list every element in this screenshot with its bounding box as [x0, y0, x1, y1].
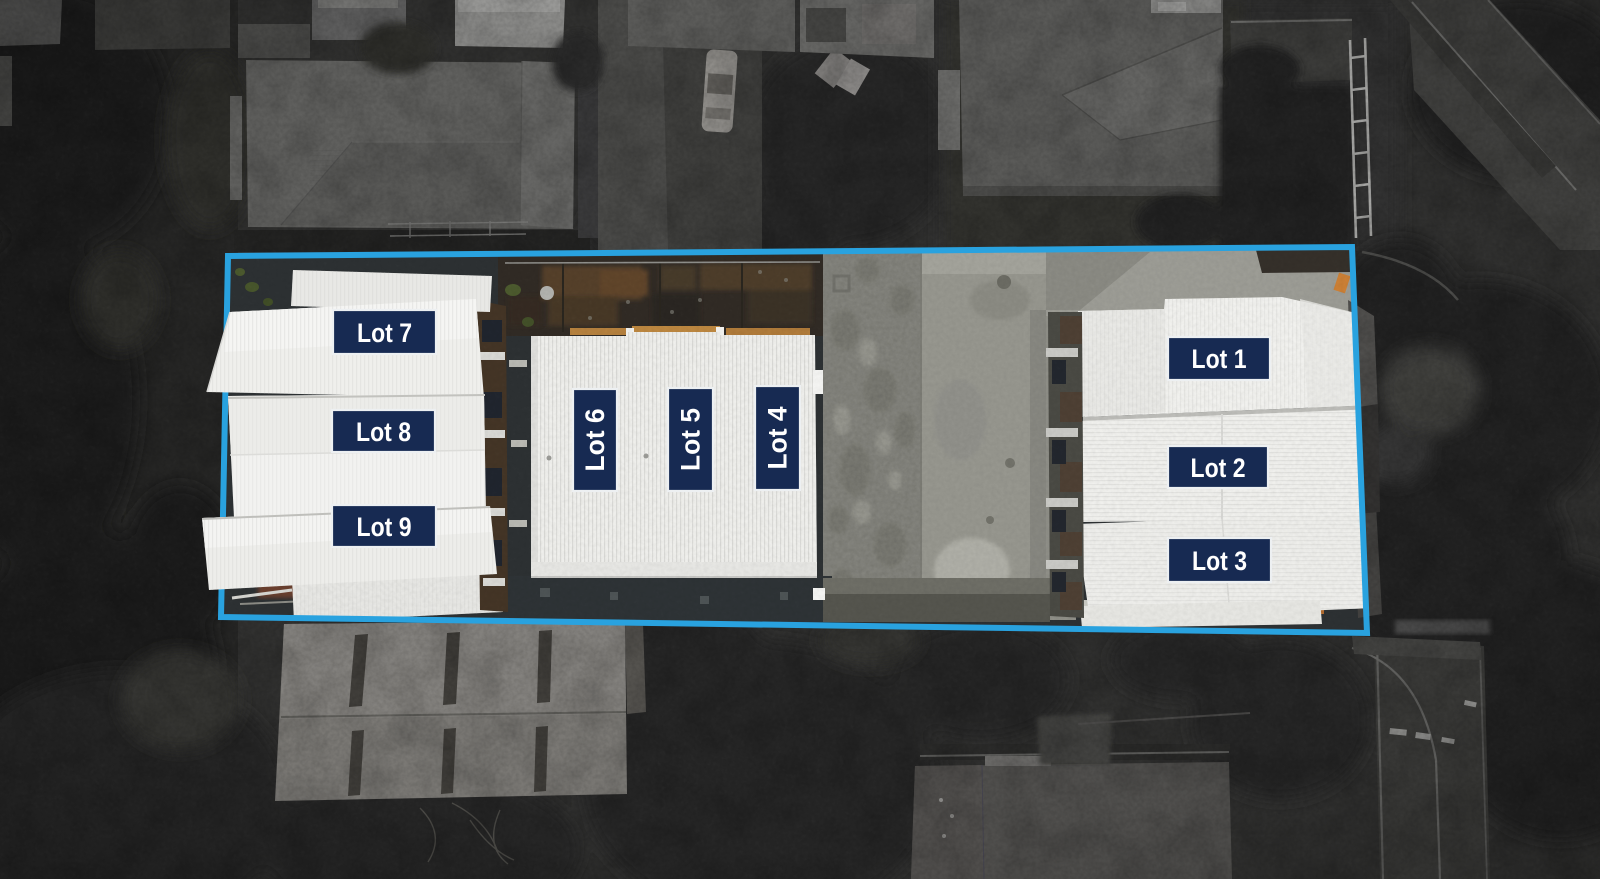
- svg-text:Lot 9: Lot 9: [357, 512, 412, 542]
- svg-text:Lot 1: Lot 1: [1192, 344, 1247, 374]
- svg-text:Lot 4: Lot 4: [763, 407, 793, 470]
- svg-text:Lot 5: Lot 5: [676, 408, 706, 471]
- svg-text:Lot 8: Lot 8: [356, 417, 411, 447]
- svg-text:Lot 7: Lot 7: [357, 318, 412, 348]
- svg-text:Lot 6: Lot 6: [580, 409, 610, 472]
- svg-text:Lot 3: Lot 3: [1192, 546, 1247, 576]
- svg-text:Lot 2: Lot 2: [1191, 453, 1246, 483]
